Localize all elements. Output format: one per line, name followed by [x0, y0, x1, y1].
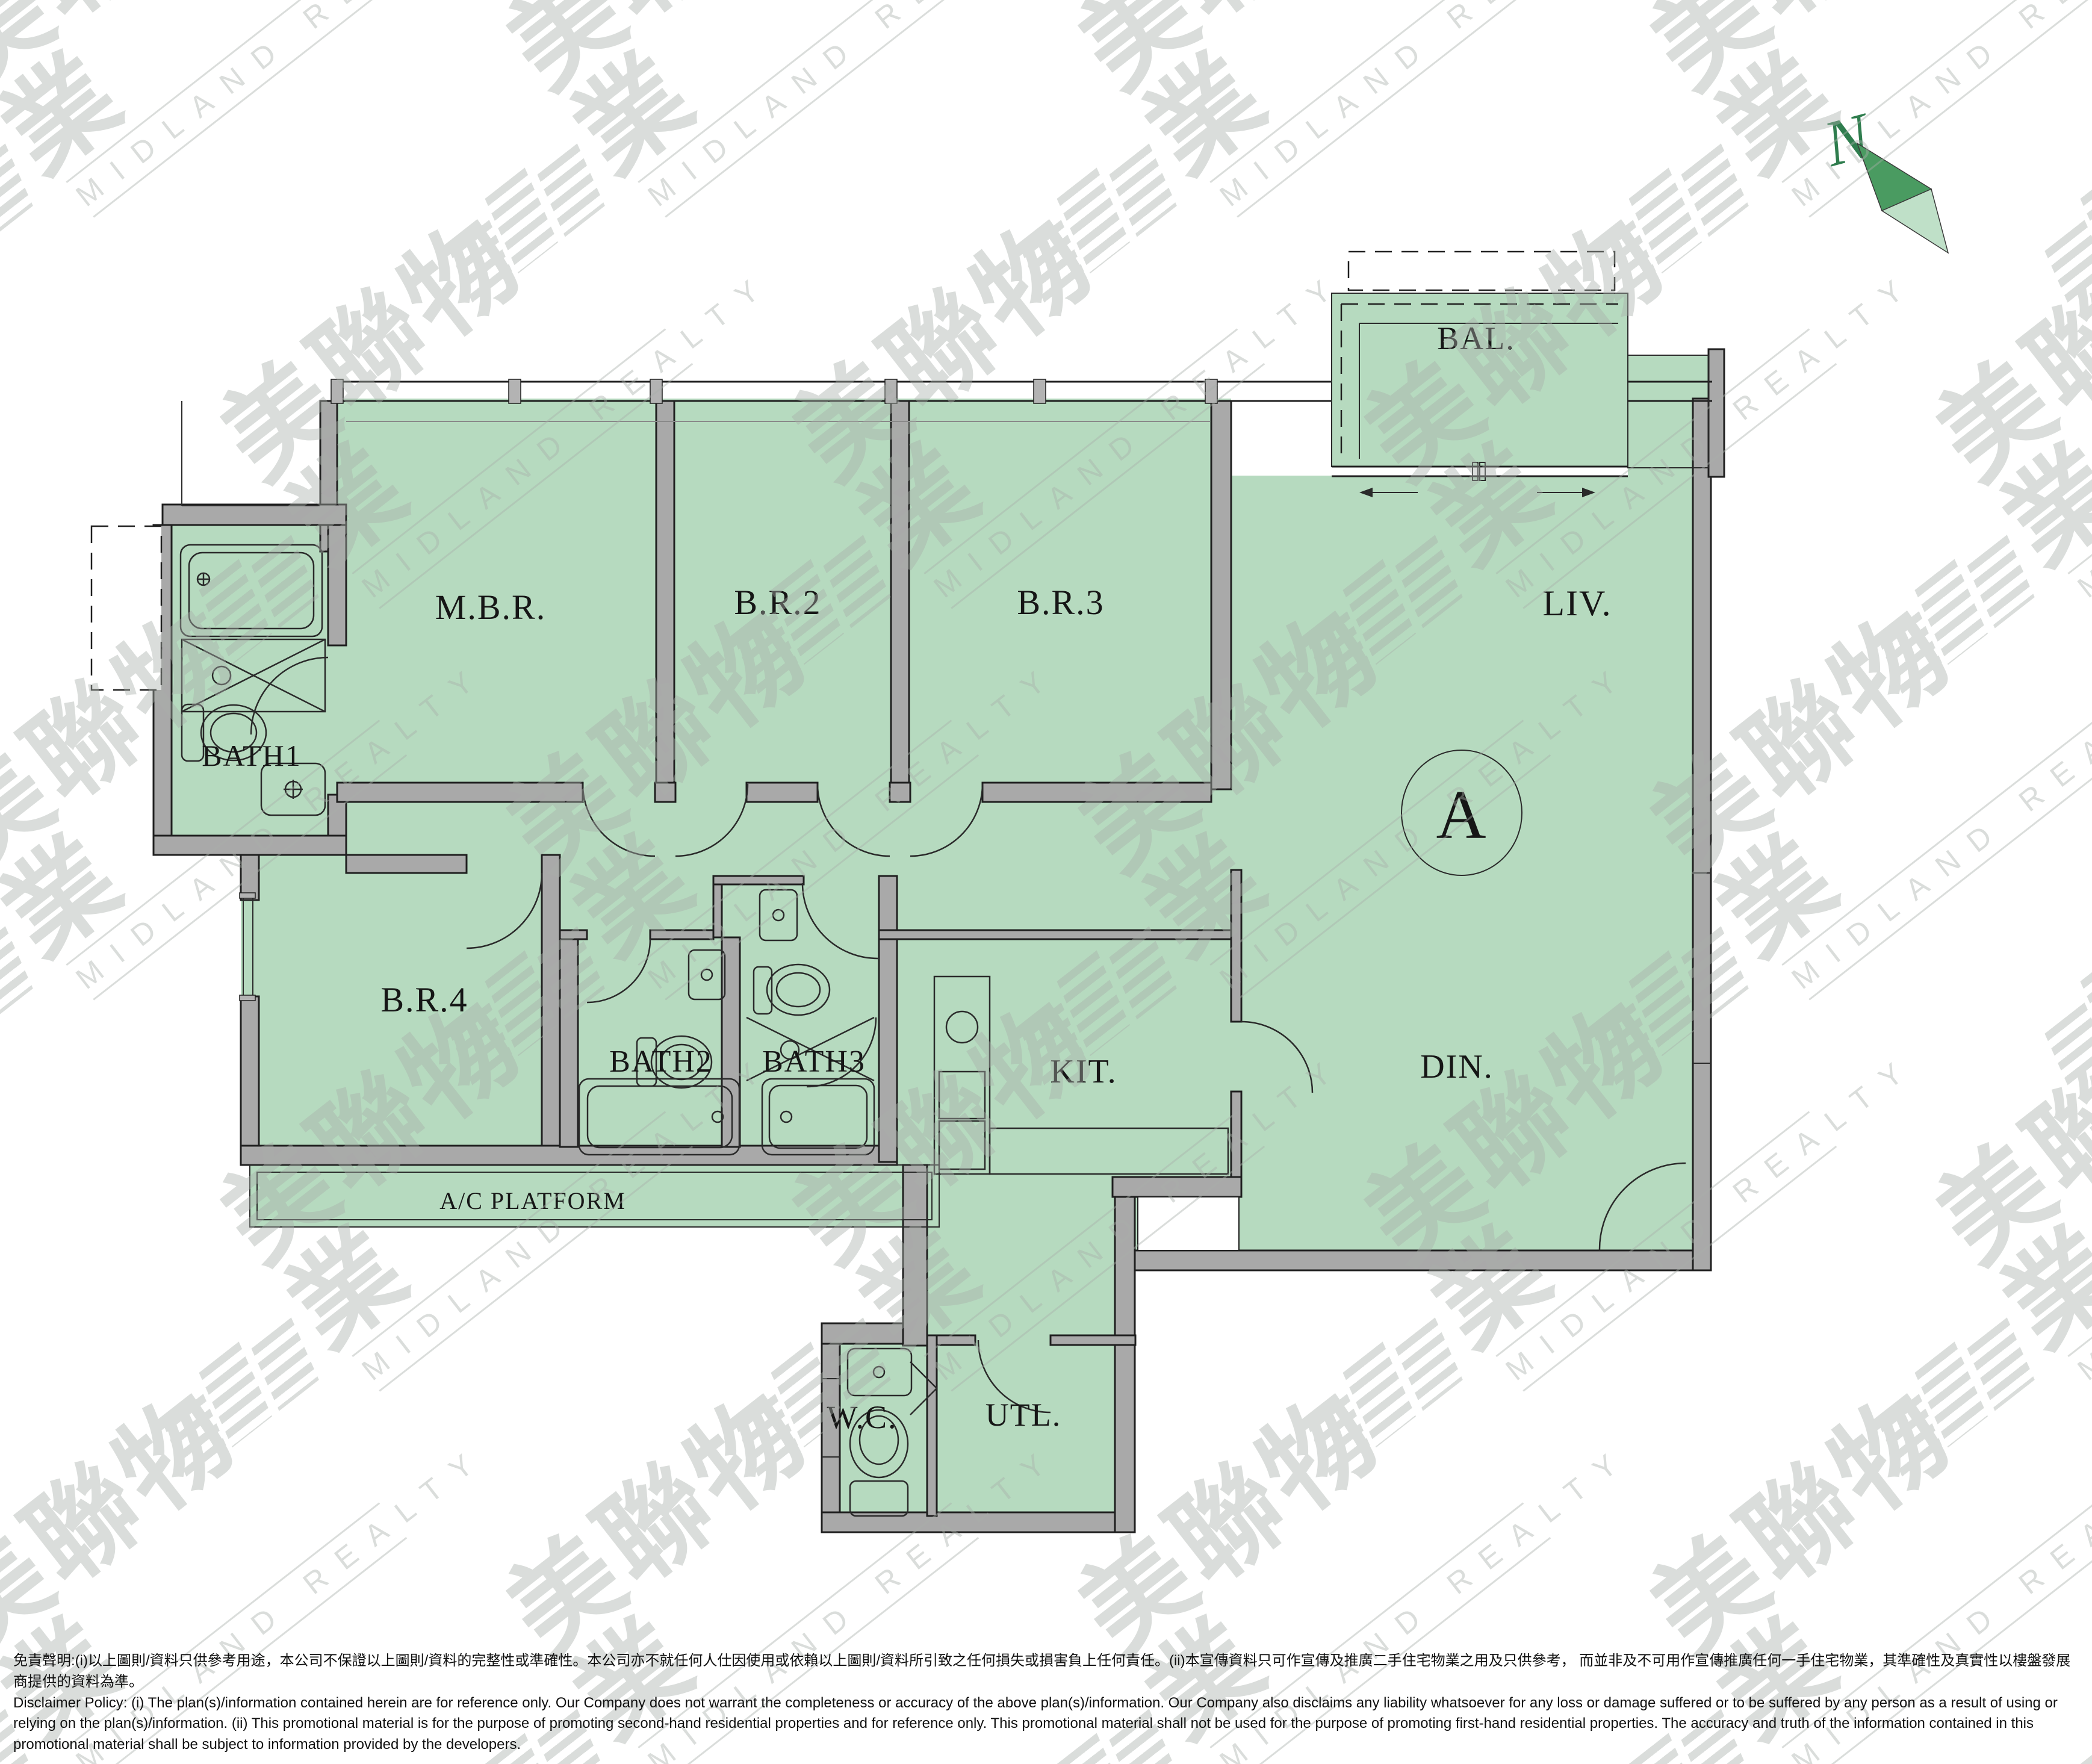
- disclaimer-en: Disclaimer Policy: (i) The plan(s)/infor…: [13, 1693, 2080, 1756]
- room-label-bath1: BATH1: [202, 739, 302, 772]
- north-compass-icon: N: [1816, 99, 1948, 253]
- room-label-mbr: M.B.R.: [435, 588, 546, 627]
- floor-plan-page: M.B.R. B.R.2 B.R.3 LIV. BAL. BATH1 B.R.4…: [0, 0, 2092, 1764]
- room-label-bal: BAL.: [1437, 320, 1515, 356]
- room-label-br2: B.R.2: [734, 583, 821, 622]
- unit-marker-label: A: [1436, 777, 1487, 853]
- room-label-wc: W.C.: [827, 1399, 897, 1435]
- room-label-ac-platform: A/C PLATFORM: [439, 1187, 626, 1214]
- disclaimer-zh: 免責聲明:(i)以上圖則/資料只供參考用途，本公司不保證以上圖則/資料的完整性或…: [13, 1651, 2080, 1693]
- room-label-utl: UTL.: [985, 1397, 1061, 1433]
- disclaimer: 免責聲明:(i)以上圖則/資料只供參考用途，本公司不保證以上圖則/資料的完整性或…: [13, 1651, 2080, 1756]
- room-label-br4: B.R.4: [380, 980, 468, 1019]
- room-label-din: DIN.: [1420, 1048, 1494, 1085]
- floor-plan-svg: M.B.R. B.R.2 B.R.3 LIV. BAL. BATH1 B.R.4…: [0, 0, 2092, 1764]
- room-label-liv: LIV.: [1542, 583, 1612, 623]
- room-label-bath2: BATH2: [609, 1045, 713, 1079]
- room-label-kit: KIT.: [1050, 1053, 1117, 1090]
- room-label-br3: B.R.3: [1017, 583, 1104, 622]
- room-label-bath3: BATH3: [762, 1045, 866, 1079]
